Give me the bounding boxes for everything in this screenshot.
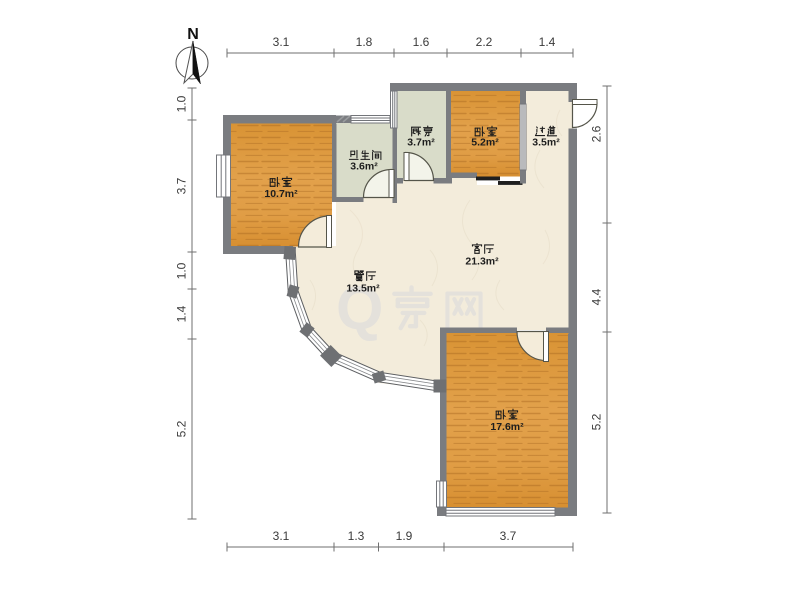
svg-text:1.9: 1.9 <box>396 529 413 543</box>
svg-text:1.8: 1.8 <box>356 35 373 49</box>
svg-text:10.7m²: 10.7m² <box>264 188 298 200</box>
svg-text:3.6m²: 3.6m² <box>350 161 378 173</box>
svg-text:17.6m²: 17.6m² <box>490 421 524 433</box>
svg-text:5.2: 5.2 <box>590 413 604 430</box>
svg-text:3.1: 3.1 <box>273 529 290 543</box>
svg-text:1.6: 1.6 <box>413 35 430 49</box>
svg-text:21.3m²: 21.3m² <box>465 256 499 268</box>
svg-text:5.2: 5.2 <box>175 420 189 437</box>
svg-text:5.2m²: 5.2m² <box>471 137 499 149</box>
svg-text:2.2: 2.2 <box>476 35 493 49</box>
svg-text:1.4: 1.4 <box>175 305 189 322</box>
svg-text:4.4: 4.4 <box>590 288 604 305</box>
svg-text:3.7: 3.7 <box>500 529 517 543</box>
svg-text:1.0: 1.0 <box>175 95 189 112</box>
svg-text:1.4: 1.4 <box>539 35 556 49</box>
svg-text:3.5m²: 3.5m² <box>532 137 560 149</box>
svg-text:3.1: 3.1 <box>273 35 290 49</box>
svg-text:N: N <box>187 26 199 43</box>
svg-text:1.0: 1.0 <box>175 262 189 279</box>
svg-text:3.7: 3.7 <box>175 177 189 194</box>
svg-text:13.5m²: 13.5m² <box>346 283 380 295</box>
svg-text:3.7m²: 3.7m² <box>407 137 435 149</box>
svg-text:1.3: 1.3 <box>348 529 365 543</box>
svg-text:2.6: 2.6 <box>590 125 604 142</box>
